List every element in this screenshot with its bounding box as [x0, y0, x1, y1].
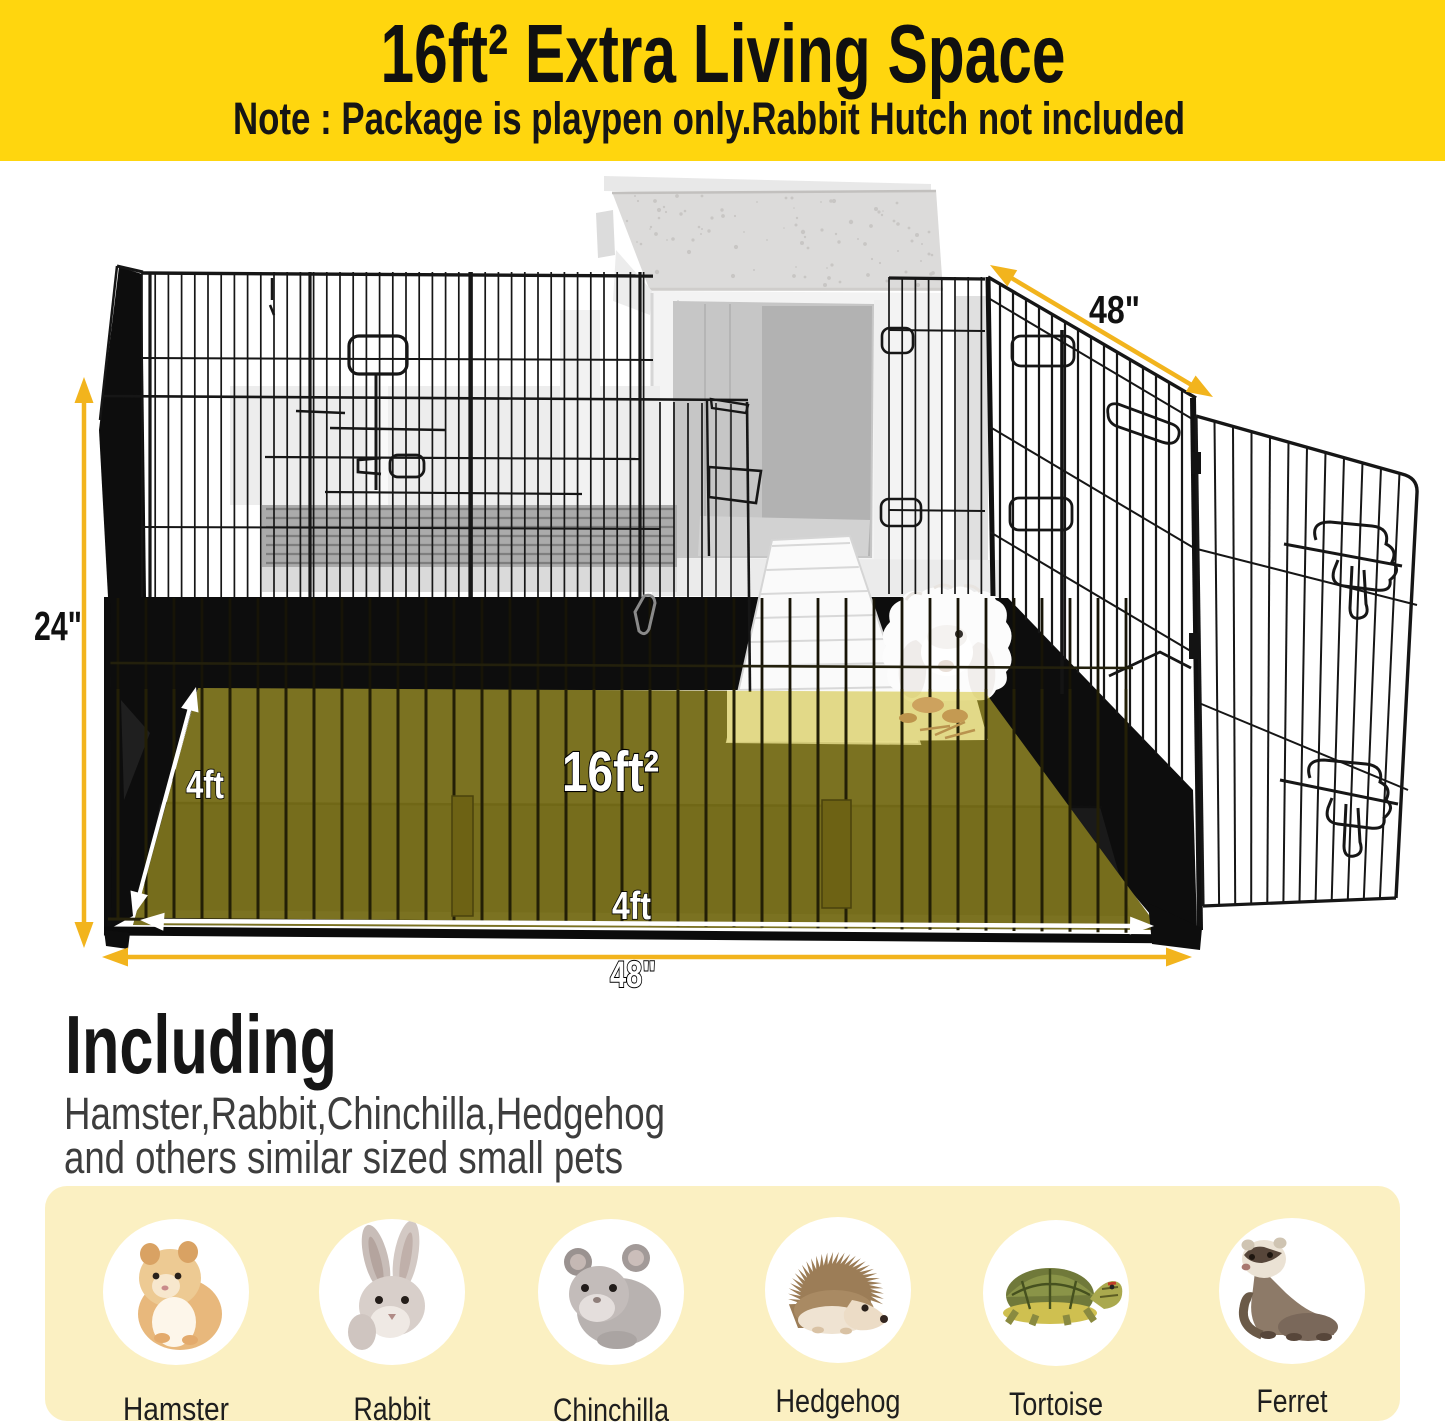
svg-text:48": 48": [1089, 289, 1140, 332]
svg-text:24": 24": [34, 603, 82, 649]
svg-text:4ft: 4ft: [612, 885, 651, 928]
svg-text:Ferret: Ferret: [1257, 1383, 1328, 1419]
svg-text:Rabbit: Rabbit: [354, 1391, 431, 1427]
svg-text:Chinchilla: Chinchilla: [553, 1392, 669, 1428]
svg-text:Tortoise: Tortoise: [1009, 1386, 1103, 1422]
svg-text:and others similar sized small: and others similar sized small pets: [64, 1132, 623, 1183]
svg-text:Hamster: Hamster: [123, 1391, 229, 1427]
svg-text:16ft²: 16ft²: [562, 740, 659, 804]
svg-text:4ft: 4ft: [186, 764, 224, 807]
svg-text:Hedgehog: Hedgehog: [776, 1383, 901, 1419]
svg-text:Note : Package is playpen only: Note : Package is playpen only.Rabbit Hu…: [233, 93, 1185, 144]
svg-text:Including: Including: [65, 998, 337, 1091]
svg-text:16ft² Extra Living Space: 16ft² Extra Living Space: [381, 7, 1066, 100]
svg-text:48": 48": [610, 954, 656, 995]
